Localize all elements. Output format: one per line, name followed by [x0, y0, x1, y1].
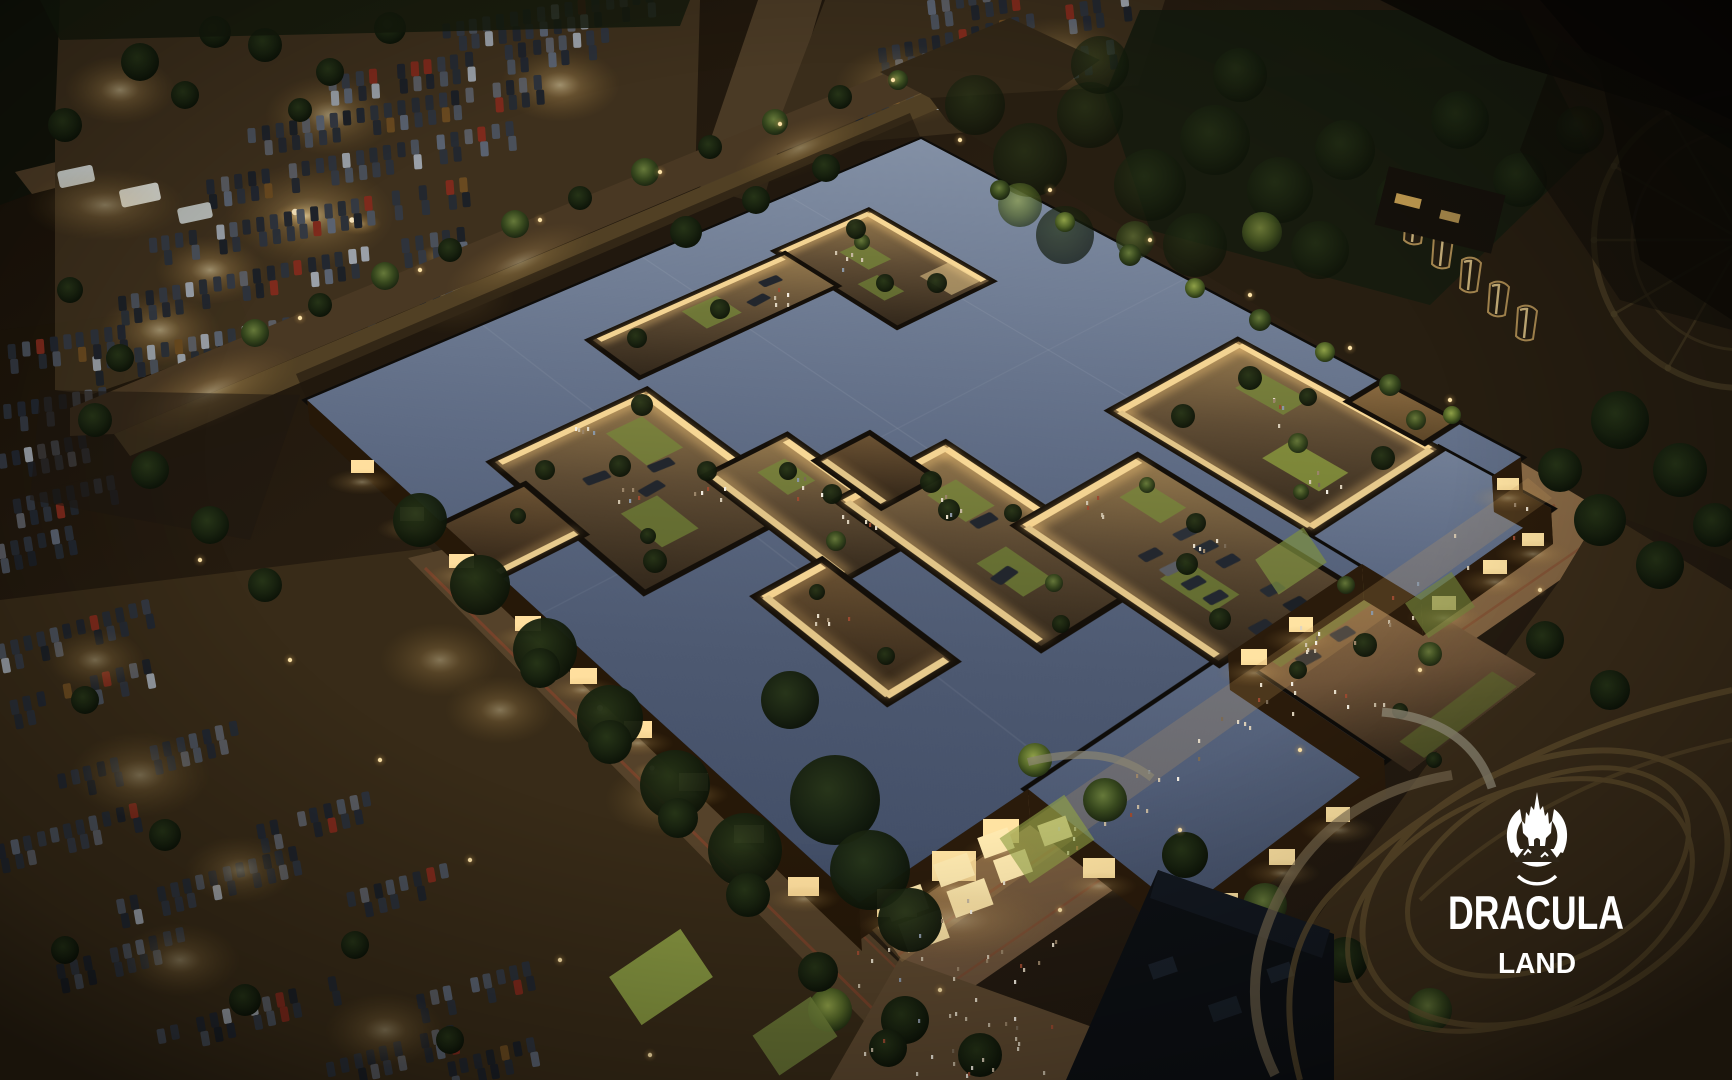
svg-text:DRACULA: DRACULA	[1448, 886, 1624, 939]
svg-text:LAND: LAND	[1498, 948, 1576, 980]
